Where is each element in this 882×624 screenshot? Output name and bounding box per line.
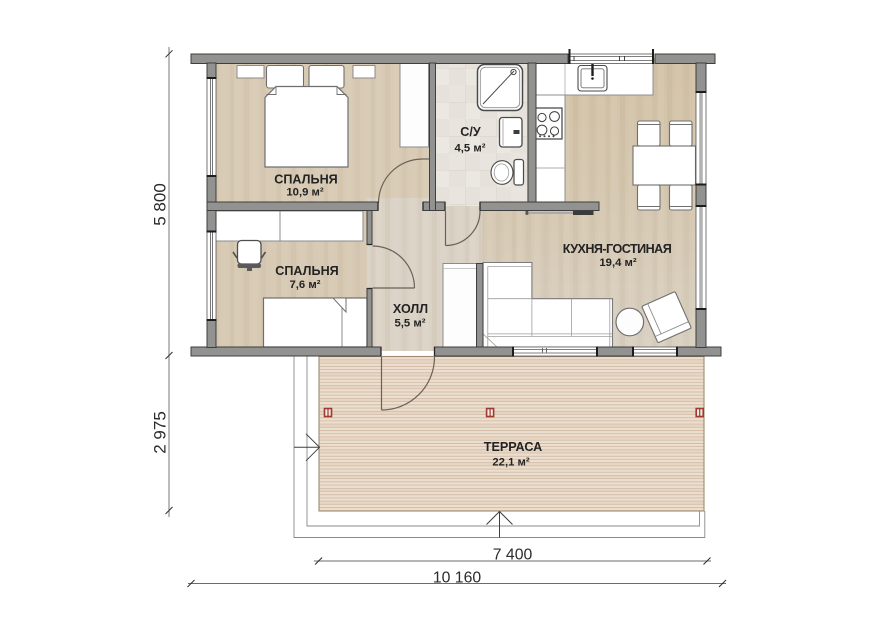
svg-text:5,5 м²: 5,5 м² — [395, 318, 426, 330]
svg-text:7,6 м²: 7,6 м² — [290, 279, 321, 291]
svg-text:19,4 м²: 19,4 м² — [599, 257, 636, 269]
svg-text:СПАЛЬНЯ: СПАЛЬНЯ — [274, 173, 337, 187]
svg-text:22,1 м²: 22,1 м² — [492, 457, 529, 469]
svg-text:КУХНЯ-ГОСТИНАЯ: КУХНЯ-ГОСТИНАЯ — [563, 242, 672, 256]
svg-text:2 975: 2 975 — [151, 411, 170, 454]
svg-text:ХОЛЛ: ХОЛЛ — [393, 302, 428, 316]
svg-text:10 160: 10 160 — [433, 569, 482, 586]
svg-text:СПАЛЬНЯ: СПАЛЬНЯ — [275, 264, 338, 278]
svg-text:С/У: С/У — [460, 125, 481, 139]
svg-text:4,5 м²: 4,5 м² — [455, 143, 486, 155]
svg-text:5 800: 5 800 — [151, 183, 170, 226]
svg-text:7 400: 7 400 — [493, 546, 533, 563]
svg-text:ТЕРРАСА: ТЕРРАСА — [484, 440, 542, 454]
svg-text:10,9 м²: 10,9 м² — [286, 187, 323, 199]
